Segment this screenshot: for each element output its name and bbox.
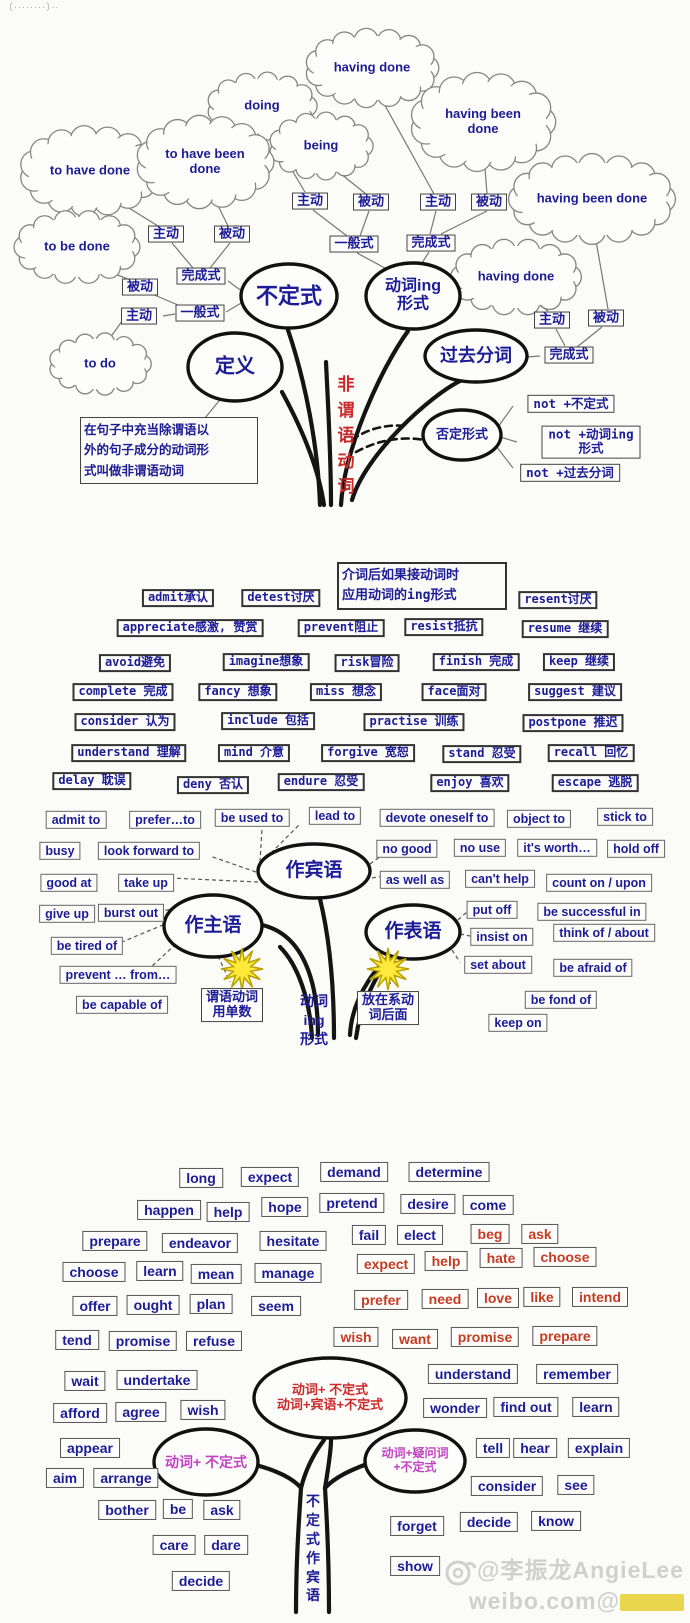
grammar-box: 完成式 [544,347,593,364]
negative-form-box: not +动词ing形式 [542,426,641,459]
grammar-box: 主动 [121,308,157,325]
branch-ellipse-label: 作表语 [384,921,441,943]
verb-box: learn [572,1397,619,1417]
verb-box: help [425,1251,468,1271]
verb-box: face面对 [422,683,487,701]
verb-box: fancy 想象 [198,683,277,701]
phrase-box: be successful in [537,903,646,921]
phrase-box: prefer…to [129,811,201,829]
verb-box: consider [471,1476,543,1496]
verb-box: aim [46,1468,84,1488]
pattern-ellipse-label: 动词+ 不定式 动词+宾语+不定式 [277,1383,383,1413]
verb-box: imagine想象 [223,653,310,671]
verb-box: see [557,1475,594,1495]
verb-box: agree [115,1402,166,1422]
verb-box: demand [320,1162,388,1182]
cloud-label: having been done [428,107,538,137]
phrase-box: hold off [607,840,665,858]
grammar-box: 主动 [534,312,570,329]
verb-box: explain [568,1438,630,1458]
verb-box: consider 认为 [74,713,175,731]
definition-box: 在句子中充当除谓语以 外的句子成分的动词形 式叫做非谓语动词 [80,417,258,484]
section2-trunk-label: 动词 ing 形式 [295,992,333,1049]
cloud-label: having done [320,61,424,76]
verb-box: recall 回忆 [548,744,635,762]
verb-box: mind 介意 [218,744,290,762]
branch-ellipse-label: 过去分词 [440,346,512,367]
verb-box: remember [536,1364,618,1384]
grammar-box: 主动 [420,194,456,211]
verb-box: prepare [532,1326,597,1346]
trunk-note-box: 放在系动 词后面 [357,991,419,1025]
verb-box: pretend [319,1193,384,1213]
verb-box: forget [390,1516,444,1536]
verb-box: resume 继续 [522,620,609,638]
verb-box: prevent阻止 [298,619,385,637]
verb-box: happen [137,1200,201,1220]
trunk-note-box: 谓语动词 用单数 [201,988,263,1022]
verb-box: offer [72,1296,117,1316]
negative-form-box: not +不定式 [527,395,614,413]
preposition-note-box: 介词后如果接动词时 应用动词的ing形式 [337,562,507,610]
grammar-box: 被动 [122,279,158,296]
phrase-box: prevent … from… [60,966,177,984]
phrase-box: object to [507,810,571,828]
verb-box: wish [333,1327,378,1347]
verb-box: refuse [186,1331,242,1351]
verb-box: tell [476,1438,510,1458]
cloud-label: having been done [525,192,659,207]
verb-box: miss 想念 [310,683,382,701]
watermark-url: weibo.com@ [469,1588,620,1614]
verb-box: seem [251,1296,301,1316]
phrase-box: be capable of [76,996,168,1014]
verb-box: find out [493,1397,558,1417]
verb-box: avoid避免 [99,654,171,672]
label-layer: 在句子中充当除谓语以 外的句子成分的动词形 式叫做非谓语动词 介词后如果接动词时… [0,0,690,1623]
verb-box: manage [255,1263,322,1283]
phrase-box: count on / upon [546,874,652,892]
phrase-box: be afraid of [553,959,632,977]
cloud-label: having done [465,270,567,285]
verb-box: choose [533,1247,596,1267]
branch-ellipse-label: 否定形式 [436,428,488,443]
phrase-box: be used to [215,809,290,827]
verb-box: expect [357,1254,415,1274]
verb-box: show [390,1556,440,1576]
verb-box: wish [180,1400,225,1420]
grammar-box: 被动 [214,226,250,243]
grammar-box: 一般式 [329,236,378,253]
branch-ellipse-label: 动词ing 形式 [385,278,441,315]
verb-box: determine [409,1162,490,1182]
verb-box: beg [471,1224,510,1244]
verb-box: undertake [117,1370,198,1390]
verb-box: understand [428,1364,518,1384]
verb-box: decide [172,1571,230,1591]
phrase-box: insist on [470,928,533,946]
phrase-box: busy [39,842,80,860]
phrase-box: put off [467,901,518,919]
verb-box: expect [241,1167,299,1187]
cloud-label: being [282,139,360,154]
verb-box: ought [127,1295,180,1315]
verb-box: deny 否认 [177,776,249,794]
phrase-box: no good [376,840,437,858]
pattern-ellipse-label: 动词+疑问词 +不定式 [381,1447,448,1475]
verb-box: postpone 推迟 [522,714,623,732]
verb-box: hate [480,1248,523,1268]
verb-box: practise 训练 [363,713,464,731]
section1-trunk-label: 非 谓 语 动 词 [334,372,358,500]
verb-box: mean [191,1264,242,1284]
verb-box: finish 完成 [433,653,520,671]
branch-ellipse-label: 不定式 [256,283,322,308]
verb-box: appear [60,1438,120,1458]
phrase-box: keep on [488,1014,547,1032]
grammar-box: 被动 [471,194,507,211]
verb-box: fail [352,1225,386,1245]
verb-box: bother [98,1500,156,1520]
cloud-label: to have been done [153,147,257,177]
phrase-box: stick to [597,808,653,826]
verb-box: appreciate感激, 赞赏 [117,619,264,637]
verb-box: afford [53,1403,107,1423]
weibo-icon [443,1558,477,1586]
verb-box: elect [397,1225,443,1245]
pattern-ellipse-label: 动词+ 不定式 [165,1454,247,1470]
phrase-box: no use [454,839,506,857]
verb-box: know [531,1511,581,1531]
verb-box: admit承认 [142,589,214,607]
branch-ellipse-label: 作宾语 [285,860,342,882]
verb-box: need [422,1289,469,1309]
verb-box: ask [521,1224,558,1244]
cloud-label: to have done [36,164,144,179]
verb-box: hope [261,1197,308,1217]
phrase-box: be tired of [51,937,123,955]
verb-box: understand 理解 [71,744,186,762]
verb-box: endeavor [162,1233,238,1253]
cloud-label: to be done [28,240,126,255]
verb-box: choose [62,1262,125,1282]
verb-box: ask [203,1500,240,1520]
phrase-box: set about [464,956,532,974]
negative-form-box: not +过去分词 [520,464,620,482]
verb-box: detest讨厌 [241,589,320,607]
verb-box: forgive 宽恕 [321,744,415,762]
verb-box: complete 完成 [72,683,173,701]
verb-box: be [163,1499,193,1519]
grammar-box: 主动 [292,193,328,210]
grammar-box: 主动 [148,226,184,243]
phrase-box: can't help [465,870,535,888]
grammar-box: 完成式 [406,235,455,252]
verb-box: promise [451,1327,519,1347]
phrase-box: lead to [309,807,361,825]
diagram-canvas: 〔········〕·· 在句子中充当除谓语以 外的句子成分的动词形 式叫做非谓… [0,0,690,1623]
phrase-box: think of / about [553,924,655,942]
cloud-label: doing [220,99,304,114]
phrase-box: give up [39,905,95,923]
verb-box: love [477,1288,519,1308]
section3-trunk-label: 不 定 式 作 宾 语 [302,1492,324,1605]
phrase-box: devote oneself to [380,809,495,827]
verb-box: dare [204,1535,248,1555]
verb-box: risk冒险 [335,654,400,672]
verb-box: long [179,1168,223,1188]
verb-box: tend [55,1330,99,1350]
phrase-box: it's worth… [517,839,597,857]
verb-box: like [523,1287,560,1307]
verb-box: prepare [82,1231,147,1251]
phrase-box: burst out [98,904,164,922]
verb-box: help [207,1202,250,1222]
verb-box: care [153,1535,196,1555]
phrase-box: admit to [46,811,107,829]
branch-ellipse-label: 作主语 [184,915,241,937]
verb-box: decide [460,1512,518,1532]
verb-box: enjoy 喜欢 [430,774,509,792]
verb-box: intend [572,1287,628,1307]
watermark-handle: @李振龙AngieLee [477,1557,684,1583]
verb-box: stand 忍受 [442,745,521,763]
verb-box: delay 耽误 [52,772,131,790]
phrase-box: look forward to [98,842,200,860]
phrase-box: as well as [380,871,450,889]
phrase-box: good at [40,874,97,892]
verb-box: wait [64,1371,105,1391]
verb-box: suggest 建议 [528,683,622,701]
branch-ellipse-label: 定义 [215,356,255,379]
grammar-box: 一般式 [175,305,224,322]
grammar-box: 被动 [588,310,624,327]
verb-box: learn [136,1261,183,1281]
cloud-label: to do [61,357,139,372]
verb-box: arrange [93,1468,158,1488]
verb-box: keep 继续 [543,653,615,671]
verb-box: resent讨厌 [518,591,597,609]
verb-box: resist抵抗 [404,618,483,636]
phrase-box: take up [118,874,174,892]
verb-box: wonder [423,1398,487,1418]
verb-box: want [392,1329,438,1349]
verb-box: include 包括 [221,712,315,730]
verb-box: promise [109,1331,177,1351]
verb-box: come [463,1195,514,1215]
phrase-box: be fond of [525,991,597,1009]
watermark-highlight [620,1594,684,1611]
watermark: @李振龙AngieLee weibo.com@ [443,1551,684,1615]
grammar-box: 完成式 [176,268,225,285]
verb-box: plan [190,1294,233,1314]
verb-box: endure 忍受 [278,773,365,791]
verb-box: escape 逃脱 [552,774,639,792]
grammar-box: 被动 [353,194,389,211]
verb-box: desire [400,1194,455,1214]
verb-box: hesitate [260,1231,327,1251]
verb-box: prefer [354,1290,408,1310]
verb-box: hear [513,1438,557,1458]
